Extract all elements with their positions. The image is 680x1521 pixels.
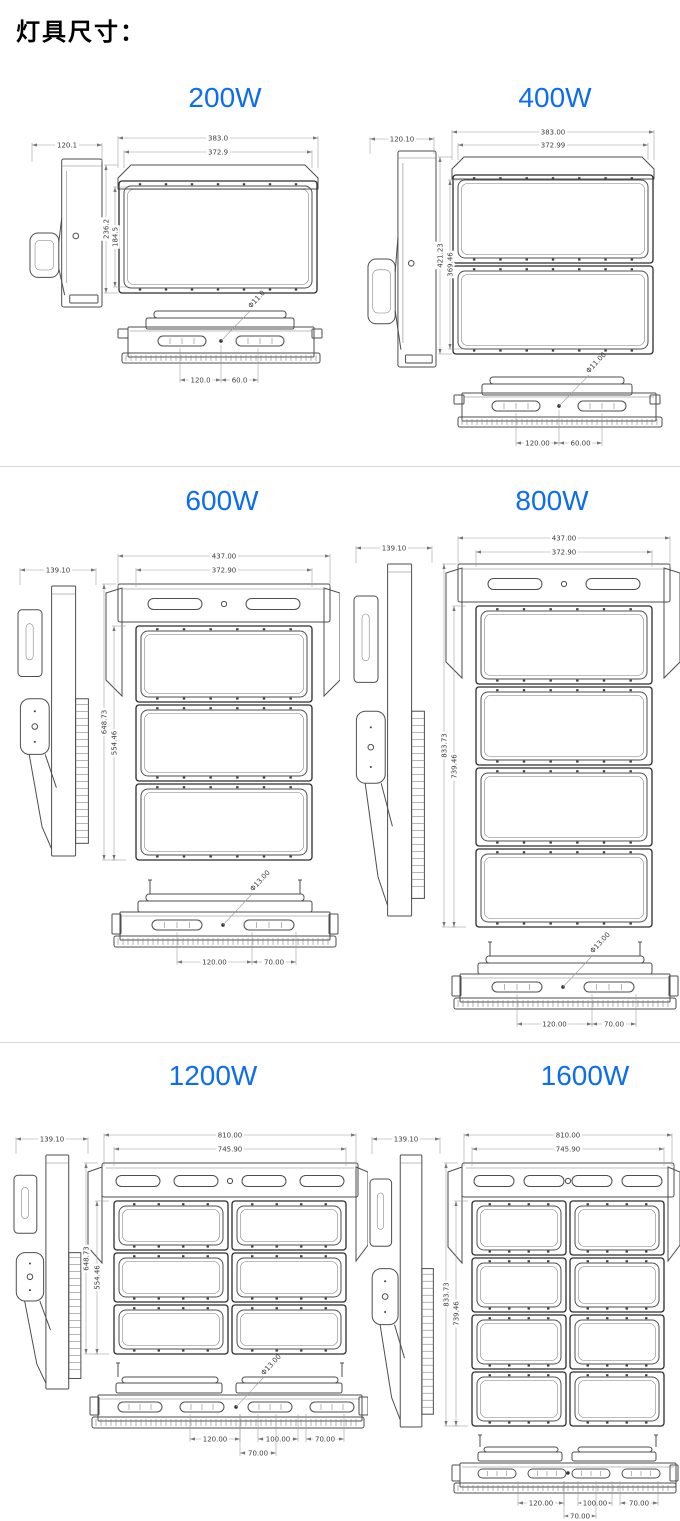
svg-text:100.00: 100.00 <box>583 1500 608 1508</box>
dimensions: 120.10383.00372.99421.23369.46 <box>370 127 654 354</box>
section-200w-400w: 200W Φ11.0120.060.0120.1383.0372.9236.21… <box>0 75 680 460</box>
svg-text:372.90: 372.90 <box>552 549 577 557</box>
section-600w-800w: 600W Φ13.00120.0070.00139.10437.00372.90… <box>0 478 680 1040</box>
svg-text:421.23: 421.23 <box>437 243 445 268</box>
bottom-view: Φ13.00120.00100.0070.0070.00 <box>90 1353 368 1458</box>
svg-text:372.90: 372.90 <box>212 567 237 575</box>
section-divider-1 <box>0 466 680 467</box>
svg-text:184.5: 184.5 <box>112 227 120 247</box>
svg-text:70.00: 70.00 <box>570 1513 590 1521</box>
side-view <box>30 159 102 307</box>
svg-text:554.46: 554.46 <box>94 1265 102 1290</box>
front-view <box>88 1163 368 1354</box>
svg-text:810.00: 810.00 <box>218 1132 243 1140</box>
front-view <box>452 157 654 354</box>
svg-text:236.2: 236.2 <box>103 219 111 239</box>
drawing-svg-600w: Φ13.00120.0070.00139.10437.00372.90648.7… <box>0 530 340 1040</box>
technical-drawing-1600w: 120.00100.0070.0070.00139.10810.00745.90… <box>368 1105 680 1521</box>
front-view <box>118 165 318 293</box>
side-view <box>368 151 436 367</box>
svg-text:120.10: 120.10 <box>390 136 415 144</box>
svg-text:139.10: 139.10 <box>394 1136 419 1144</box>
front-view <box>446 564 680 927</box>
svg-text:139.10: 139.10 <box>40 1136 65 1144</box>
fixture-heading-400w: 400W <box>340 75 680 125</box>
svg-text:139.10: 139.10 <box>382 545 407 553</box>
svg-text:383.0: 383.0 <box>208 135 228 143</box>
bottom-view: Φ11.0120.060.0 <box>118 289 322 385</box>
fixture-block-600w: 600W Φ13.00120.0070.00139.10437.00372.90… <box>0 478 340 1040</box>
svg-text:120.00: 120.00 <box>525 440 550 448</box>
svg-text:372.9: 372.9 <box>208 149 228 157</box>
svg-text:437.00: 437.00 <box>212 553 237 561</box>
drawing-svg-800w: Φ13.00120.0070.00139.10437.00372.90833.7… <box>340 530 680 1040</box>
svg-text:60.00: 60.00 <box>570 440 590 448</box>
fixture-heading-200w: 200W <box>0 75 340 125</box>
svg-text:369.46: 369.46 <box>447 252 455 277</box>
fixture-block-800w: 800W Φ13.00120.0070.00139.10437.00372.90… <box>340 478 680 1040</box>
drawing-svg-200w: Φ11.0120.060.0120.1383.0372.9236.2184.5 <box>0 125 340 460</box>
svg-text:100.00: 100.00 <box>266 1436 291 1444</box>
svg-text:437.00: 437.00 <box>552 535 577 543</box>
svg-text:739.46: 739.46 <box>453 1301 461 1326</box>
svg-text:120.00: 120.00 <box>529 1500 554 1508</box>
svg-text:120.00: 120.00 <box>203 1436 228 1444</box>
technical-drawing-1200w: Φ13.00120.00100.0070.0070.00139.10810.00… <box>0 1105 368 1521</box>
svg-text:70.00: 70.00 <box>604 1021 624 1029</box>
svg-text:60.0: 60.0 <box>232 377 248 385</box>
svg-text:745.90: 745.90 <box>556 1146 581 1154</box>
front-view <box>448 1163 680 1426</box>
front-view <box>106 584 340 860</box>
svg-text:120.0: 120.0 <box>190 377 210 385</box>
svg-text:70.00: 70.00 <box>264 959 284 967</box>
svg-text:810.00: 810.00 <box>556 1132 581 1140</box>
svg-text:745.90: 745.90 <box>218 1146 243 1154</box>
svg-text:Φ11.0: Φ11.0 <box>247 289 267 310</box>
fixture-block-1200w: 1200W Φ13.00120.00100.0070.0070.00139.10… <box>0 1053 368 1521</box>
dimensions: 139.10437.00372.90833.73739.46 <box>356 533 670 927</box>
fixture-block-1600w: 1600W 120.00100.0070.0070.00139.10810.00… <box>368 1053 680 1521</box>
svg-text:Φ13.00: Φ13.00 <box>589 931 612 955</box>
fixture-block-200w: 200W Φ11.0120.060.0120.1383.0372.9236.21… <box>0 75 340 460</box>
fixture-heading-600w: 600W <box>0 478 340 530</box>
drawing-svg-400w: Φ11.00120.0060.00120.10383.00372.99421.2… <box>340 125 680 460</box>
drawing-svg-1200w: Φ13.00120.00100.0070.0070.00139.10810.00… <box>0 1105 368 1521</box>
section-1200w-1600w: 1200W Φ13.00120.00100.0070.0070.00139.10… <box>0 1053 680 1521</box>
side-view <box>14 1155 81 1389</box>
svg-text:Φ13.00: Φ13.00 <box>260 1353 283 1377</box>
fixture-heading-1600w: 1600W <box>368 1053 680 1105</box>
svg-text:383.00: 383.00 <box>541 129 566 137</box>
fixture-heading-1200w: 1200W <box>0 1053 368 1105</box>
svg-text:120.00: 120.00 <box>542 1021 567 1029</box>
svg-text:70.00: 70.00 <box>248 1450 268 1458</box>
side-view <box>354 564 424 916</box>
technical-drawing-600w: Φ13.00120.0070.00139.10437.00372.90648.7… <box>0 530 340 1040</box>
dimensions: 139.10437.00372.90648.73554.46 <box>20 551 330 860</box>
svg-text:833.73: 833.73 <box>441 733 449 758</box>
svg-text:648.73: 648.73 <box>83 1246 91 1271</box>
svg-text:120.1: 120.1 <box>57 142 77 150</box>
fixture-block-400w: 400W Φ11.00120.0060.00120.10383.00372.99… <box>340 75 680 460</box>
dimensions: 139.10810.00745.90648.73554.46 <box>16 1130 356 1354</box>
dimensions: 139.10810.00745.90833.73739.46 <box>372 1130 672 1426</box>
bottom-view: Φ13.00120.0070.00 <box>112 869 338 967</box>
svg-text:70.00: 70.00 <box>315 1436 335 1444</box>
technical-drawing-800w: Φ13.00120.0070.00139.10437.00372.90833.7… <box>340 530 680 1040</box>
fixture-heading-800w: 800W <box>340 478 680 530</box>
side-view <box>18 586 88 856</box>
bottom-view: Φ13.00120.0070.00 <box>452 931 678 1029</box>
bottom-view: 120.00100.0070.0070.00 <box>452 1435 678 1521</box>
svg-text:833.73: 833.73 <box>443 1282 451 1307</box>
svg-text:372.99: 372.99 <box>541 142 566 150</box>
technical-drawing-200w: Φ11.0120.060.0120.1383.0372.9236.2184.5 <box>0 125 340 460</box>
side-view <box>370 1155 433 1427</box>
page-title: 灯具尺寸： <box>16 12 146 47</box>
svg-text:Φ13.00: Φ13.00 <box>249 869 272 893</box>
dimensions: 120.1383.0372.9236.2184.5 <box>32 133 318 293</box>
svg-text:554.46: 554.46 <box>111 730 119 755</box>
svg-text:648.73: 648.73 <box>101 710 109 735</box>
svg-text:739.46: 739.46 <box>451 754 459 779</box>
drawing-svg-1600w: 120.00100.0070.0070.00139.10810.00745.90… <box>368 1105 680 1521</box>
svg-text:70.00: 70.00 <box>629 1500 649 1508</box>
svg-text:120.00: 120.00 <box>202 959 227 967</box>
section-divider-2 <box>0 1042 680 1043</box>
svg-text:139.10: 139.10 <box>46 567 71 575</box>
technical-drawing-400w: Φ11.00120.0060.00120.10383.00372.99421.2… <box>340 125 680 460</box>
bottom-view: Φ11.00120.0060.00 <box>454 351 662 448</box>
